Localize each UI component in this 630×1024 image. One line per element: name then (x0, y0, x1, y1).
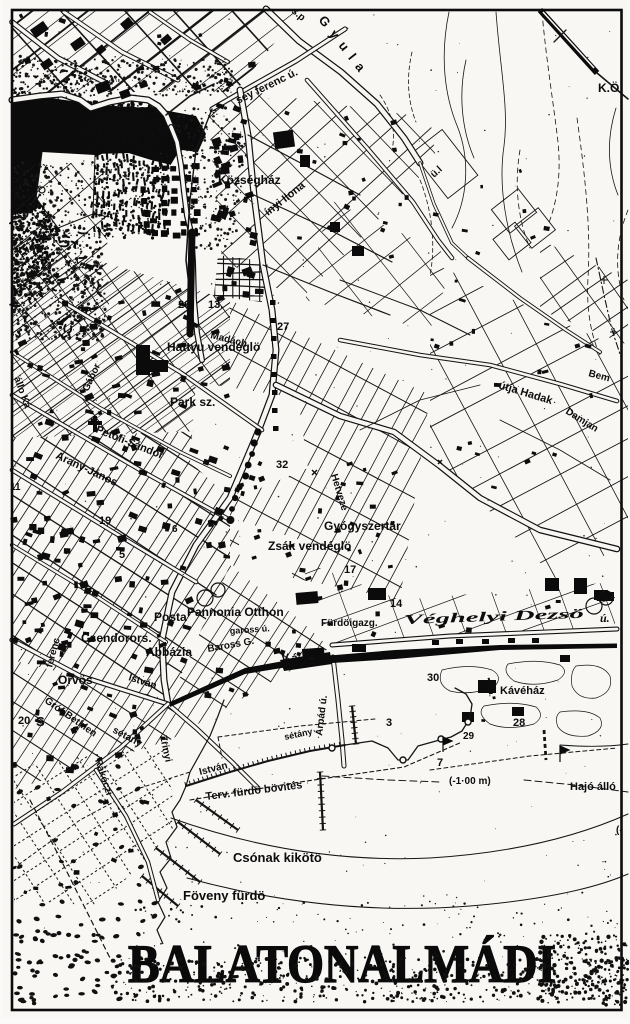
svg-text:13.: 13. (208, 299, 223, 311)
svg-text:7: 7 (437, 757, 443, 769)
svg-text:K.Ö: K.Ö (598, 80, 619, 95)
svg-text:29: 29 (463, 731, 475, 742)
svg-text:27: 27 (277, 321, 289, 333)
svg-text:Pannonia Otthon: Pannonia Otthon (187, 605, 284, 619)
svg-text:3: 3 (386, 717, 392, 729)
svg-text:6: 6 (172, 524, 178, 535)
svg-text:Fürdöigazg.: Fürdöigazg. (321, 618, 378, 629)
svg-text:Kávéház: Kávéház (500, 685, 545, 697)
svg-text:V.á.: V.á. (281, 651, 301, 665)
svg-text:5: 5 (119, 549, 125, 561)
svg-text:30: 30 (427, 672, 439, 684)
svg-text:17: 17 (344, 564, 356, 576)
svg-text:Posta: Posta (154, 610, 187, 624)
svg-text:Csónak kikötö: Csónak kikötö (233, 850, 322, 865)
svg-text:Községház: Községház (218, 173, 281, 187)
svg-text:Zsák vendéglö: Zsák vendéglö (268, 539, 351, 553)
svg-text:19: 19 (99, 515, 111, 527)
svg-text:(-1·00 m): (-1·00 m) (449, 776, 491, 787)
svg-text:28: 28 (513, 717, 525, 729)
svg-text:16: 16 (596, 592, 608, 604)
svg-text:26: 26 (178, 299, 190, 311)
svg-text:Gyógyszertár: Gyógyszertár (324, 519, 401, 533)
svg-text:Abbázia: Abbázia (146, 645, 192, 659)
svg-text:ú.: ú. (600, 611, 610, 625)
svg-text:Föveny fürdö: Föveny fürdö (183, 888, 265, 903)
svg-text:Park sz.: Park sz. (170, 395, 215, 409)
svg-text:Hajó álló: Hajó álló (570, 781, 616, 793)
svg-text:Csendorors.: Csendorors. (81, 631, 152, 645)
svg-text:32: 32 (276, 459, 288, 471)
svg-text:Orvös: Orvös (58, 673, 93, 687)
svg-text:20: 20 (18, 715, 30, 727)
svg-text:S: S (36, 714, 45, 729)
svg-text:14: 14 (390, 598, 403, 610)
svg-text:BALATONALMÁDI: BALATONALMÁDI (128, 934, 556, 994)
